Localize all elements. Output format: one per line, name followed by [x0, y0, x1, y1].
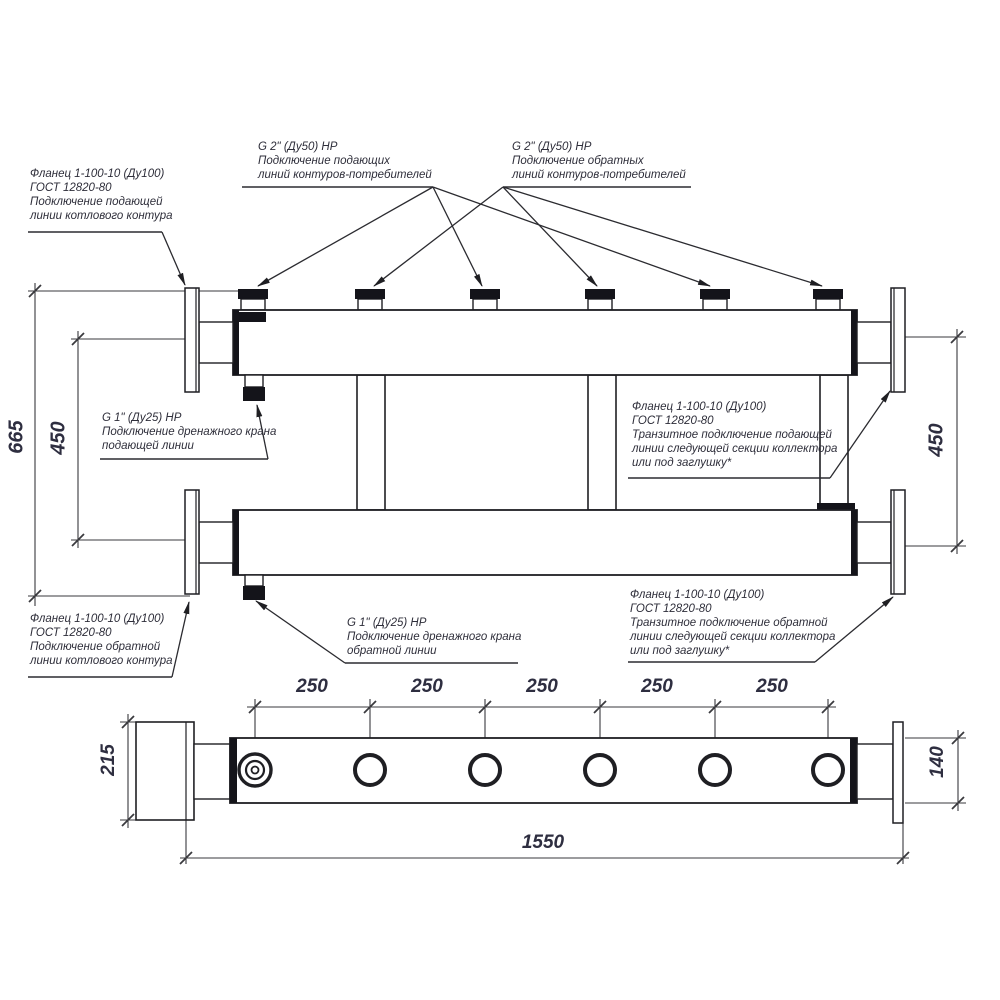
flange-neck	[199, 522, 233, 563]
return-collector-body	[233, 510, 857, 575]
label-transit-supply-flange: Фланец 1-100-10 (Ду100) ГОСТ 12820-80 Тр…	[632, 400, 837, 470]
connecting-pipe	[357, 375, 385, 510]
dim-overall-height: 665	[6, 420, 29, 453]
label-consumer-return-connections: G 2" (Ду50) НР Подключение обратных лини…	[512, 140, 686, 182]
body-end-cap	[851, 310, 857, 375]
dim-axis-distance-left: 450	[48, 421, 71, 454]
leader-boiler-return-flange	[172, 602, 189, 677]
dim-nozzle-spacing: 250	[641, 676, 673, 698]
supply-collector-body	[233, 310, 857, 375]
dim-body-diameter: 140	[927, 746, 949, 778]
dim-flange-height: 215	[98, 744, 120, 776]
transit-return-flange	[891, 490, 905, 594]
dim-nozzle-spacing: 250	[526, 676, 558, 698]
connecting-pipe	[588, 375, 616, 510]
label-boiler-supply-flange: Фланец 1-100-10 (Ду100) ГОСТ 12820-80 По…	[30, 167, 173, 223]
dim-overall-length: 1550	[522, 832, 564, 854]
consumer-nozzles	[238, 289, 843, 310]
label-boiler-return-flange: Фланец 1-100-10 (Ду100) ГОСТ 12820-80 По…	[30, 612, 173, 668]
drain-nozzle-supply	[243, 375, 265, 401]
label-consumer-supply-connections: G 2" (Ду50) НР Подключение подающих лини…	[258, 140, 432, 182]
bottom-view	[136, 722, 903, 823]
flange-neck	[857, 322, 891, 363]
dim-nozzle-spacing: 250	[411, 676, 443, 698]
dim-axis-distance-right: 450	[926, 423, 949, 456]
flange-neck	[199, 322, 233, 363]
leader-drain-return	[256, 601, 345, 663]
boiler-return-flange	[185, 490, 199, 594]
flange-neck	[857, 522, 891, 563]
bottom-left-flange	[136, 722, 194, 820]
body-end-cap	[233, 510, 239, 575]
flange-neck	[857, 744, 893, 799]
body-end-cap	[850, 738, 857, 803]
label-drain-return: G 1" (Ду25) НР Подключение дренажного кр…	[347, 616, 521, 658]
inner-thread-mark	[238, 312, 266, 322]
label-drain-supply: G 1" (Ду25) НР Подключение дренажного кр…	[102, 411, 276, 453]
flange-neck	[194, 744, 230, 799]
body-end-cap	[851, 510, 857, 575]
dim-nozzle-spacing: 250	[756, 676, 788, 698]
leader-boiler-supply-flange	[162, 232, 185, 285]
body-end-cap	[230, 738, 237, 803]
leader-supply-nozzle-1	[258, 187, 433, 286]
drain-nozzle-return	[243, 575, 265, 600]
drawing-linework	[0, 0, 1000, 1000]
bottom-right-flange	[893, 722, 903, 823]
collector-body-bottom-view	[230, 738, 857, 803]
drawing-sheet: Фланец 1-100-10 (Ду100) ГОСТ 12820-80 По…	[0, 0, 1000, 1000]
leader-return-nozzle-2	[374, 187, 503, 286]
dim-nozzle-spacing: 250	[296, 676, 328, 698]
label-transit-return-flange: Фланец 1-100-10 (Ду100) ГОСТ 12820-80 Тр…	[630, 588, 835, 658]
transit-supply-flange	[891, 288, 905, 392]
boiler-supply-flange	[185, 288, 199, 392]
